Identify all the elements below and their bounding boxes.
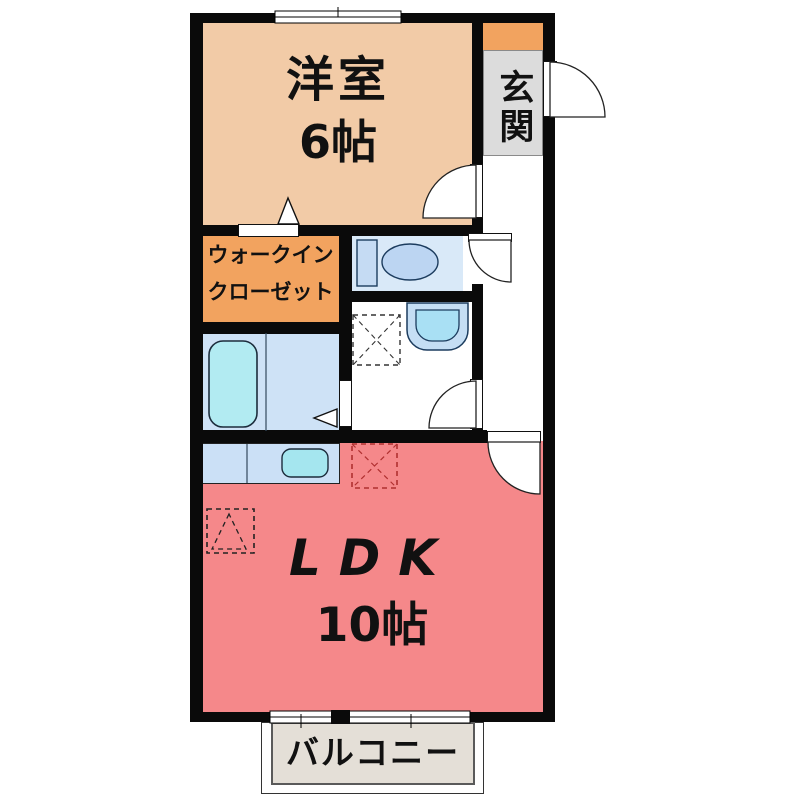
ldk-label: LDK xyxy=(200,532,544,585)
washbasin-bowl xyxy=(416,310,459,341)
bathtub xyxy=(209,341,257,427)
balcony-label: バルコニー xyxy=(271,736,475,771)
entrance-label: 玄関 xyxy=(483,62,543,154)
toilet-tank xyxy=(357,240,377,286)
closet-label-line2: クローゼット xyxy=(200,281,341,303)
western-room-size: 6帖 xyxy=(200,118,476,166)
western-room-label: 洋室 xyxy=(200,55,476,105)
toilet-door-arc xyxy=(469,240,511,282)
closet-label-line1: ウォークイン xyxy=(200,244,341,266)
window-balcony-mullion xyxy=(331,710,350,724)
kitchen-sink xyxy=(282,449,328,477)
western-room-door-arc xyxy=(423,165,476,218)
floorplan-canvas: 洋室 6帖 玄関 ウォークイン クローゼット LDK 10帖 バルコニー xyxy=(0,0,800,800)
toilet-bowl xyxy=(382,244,438,280)
bathroom-door-triangle xyxy=(314,409,337,427)
closet-door-triangle xyxy=(278,198,299,224)
ldk-size: 10帖 xyxy=(200,601,544,650)
washroom-door-arc xyxy=(429,381,476,428)
entrance-door-arc xyxy=(550,62,605,117)
ldk-door-arc xyxy=(488,442,540,494)
